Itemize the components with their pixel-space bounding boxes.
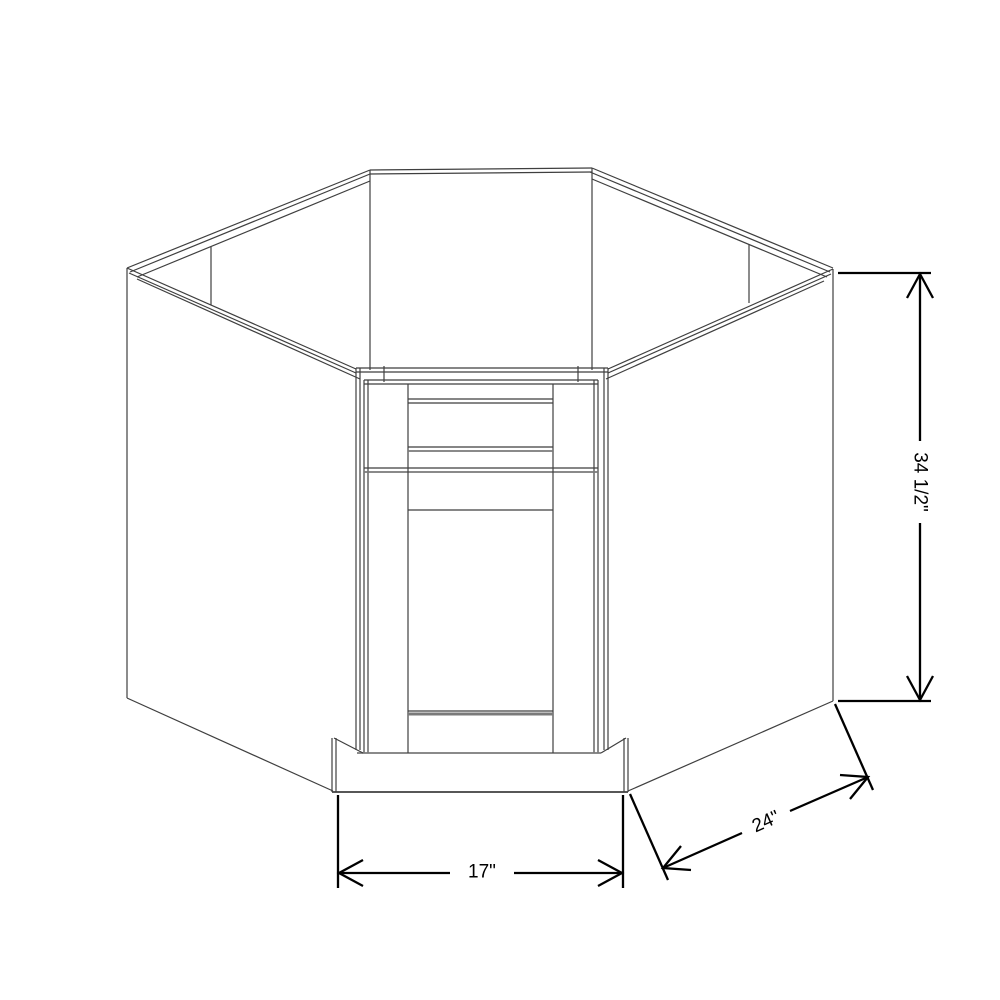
right-side-panel xyxy=(628,269,833,791)
top-rail-back xyxy=(370,168,592,174)
dimension-depth-label: 24" xyxy=(749,807,783,837)
left-side-panel xyxy=(127,268,333,791)
toe-kick xyxy=(332,738,628,792)
top-rail-back-right xyxy=(590,168,833,277)
dimension-front-width: 17" xyxy=(338,795,623,888)
cabinet-line-drawing: 34 1/2" 24" 17" xyxy=(0,0,1000,1000)
dimension-front-width-label: 17" xyxy=(468,862,496,883)
top-rail-right-side xyxy=(606,269,833,379)
front-face-frame xyxy=(356,368,608,753)
dimension-height: 34 1/2" xyxy=(838,273,933,701)
drawer-front xyxy=(408,384,553,753)
top-rail-left-side xyxy=(127,268,360,379)
cabinet-outline xyxy=(127,168,833,792)
drawing-canvas: 34 1/2" 24" 17" xyxy=(0,0,1000,1000)
door-panel xyxy=(408,510,553,714)
top-rail-back-left xyxy=(127,170,370,277)
dimension-height-label: 34 1/2" xyxy=(910,452,931,512)
dimension-depth: 24" xyxy=(630,704,873,880)
